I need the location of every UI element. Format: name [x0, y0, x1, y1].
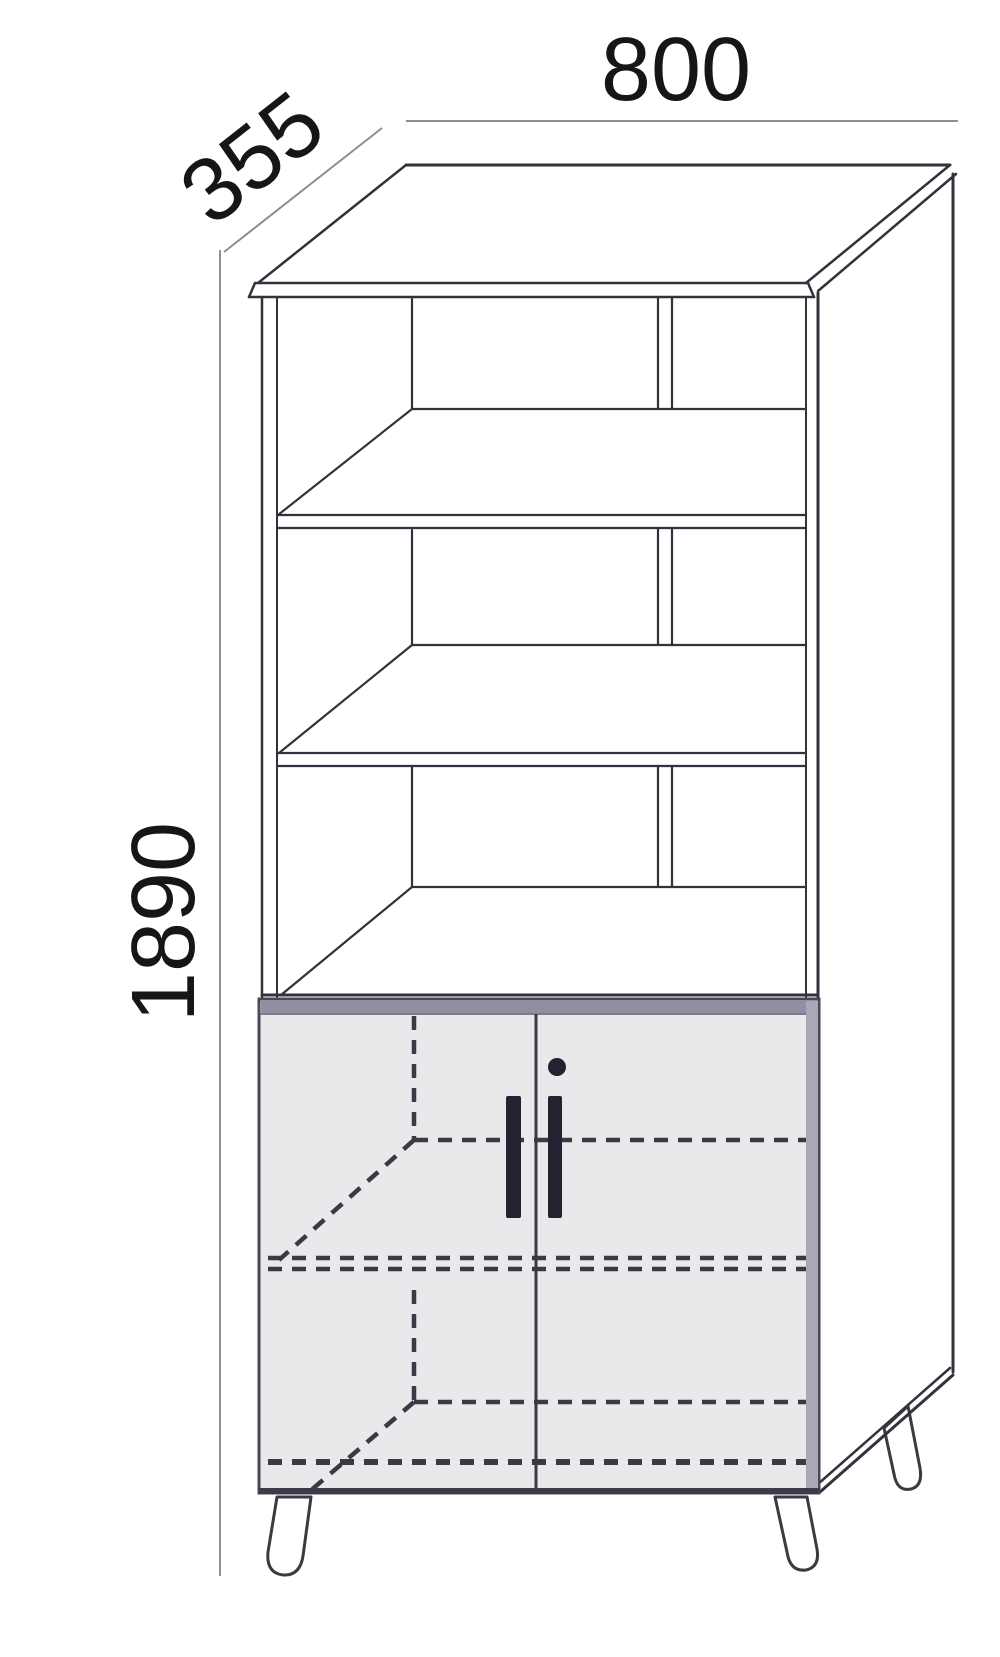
cabinet-top-panel [249, 165, 956, 297]
cabinet-diagram-canvas: 800 355 1890 [0, 0, 1000, 1657]
keyhole-icon [548, 1058, 566, 1076]
shelf2-left-edge [279, 645, 412, 753]
shelf1-left-edge [278, 409, 412, 515]
double-door-front [259, 999, 819, 1493]
door-section [259, 999, 819, 1516]
depth-dimension-label: 355 [163, 73, 343, 244]
top-front-band-left-cap [249, 283, 255, 297]
right-door-handle [548, 1096, 562, 1218]
door-top-band [261, 1000, 817, 1013]
open-compartment-3 [262, 766, 818, 995]
left-door-handle [506, 1096, 521, 1218]
top-right-edge-inner [806, 165, 950, 283]
top-right-edge-outer [818, 174, 956, 291]
top-front-band-right-cap [808, 283, 814, 297]
open-compartment-1 [277, 298, 806, 528]
width-dimension-label: 800 [601, 20, 751, 120]
right-panel-bottom-edge-inner [818, 1368, 950, 1484]
front-right-leg [775, 1497, 818, 1570]
height-dimension-label: 1890 [114, 822, 214, 1022]
cabinet-dimension-drawing: 800 355 1890 [0, 0, 1000, 1657]
compartment3-floor-left-edge [281, 887, 412, 995]
right-panel-bottom-edge-outer [820, 1375, 953, 1492]
door-right-band [806, 1001, 818, 1491]
front-left-leg [268, 1497, 311, 1575]
dimension-labels: 800 355 1890 [114, 20, 751, 1022]
open-compartment-2 [277, 529, 806, 766]
